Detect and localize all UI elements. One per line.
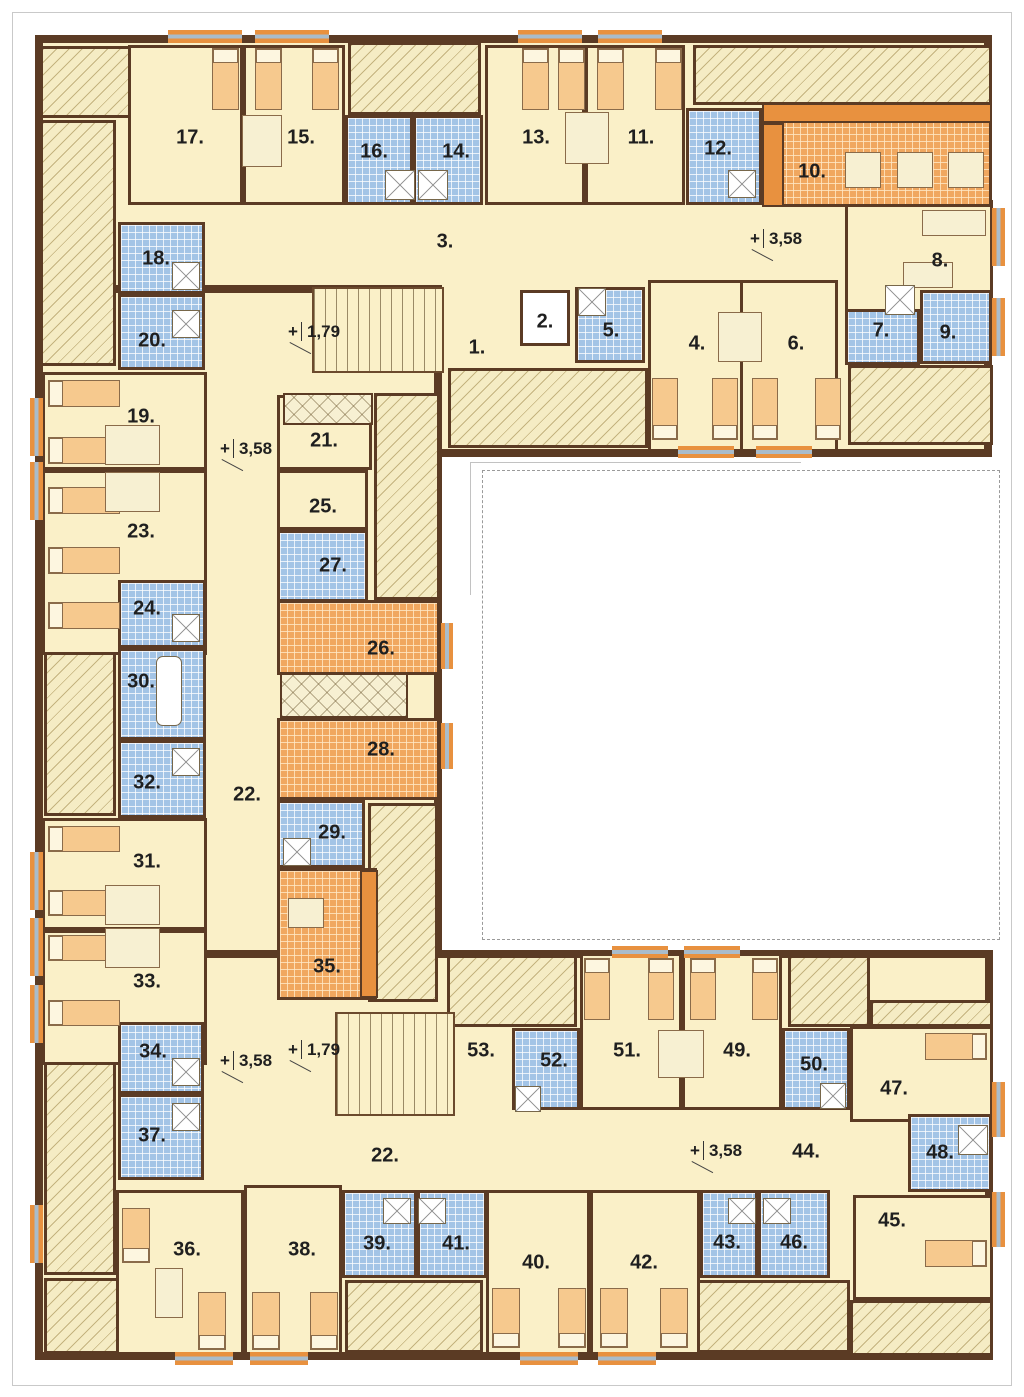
room-label-18: 18. — [142, 248, 170, 271]
bed-pillow — [598, 49, 623, 63]
bed-pillow — [753, 959, 777, 973]
bed-pillow — [213, 49, 238, 63]
table-1 — [565, 112, 609, 164]
bed-2 — [312, 48, 339, 110]
room-label-50: 50. — [800, 1054, 828, 1077]
room-label-29: 29. — [318, 822, 346, 845]
terrace-hatch-0 — [40, 46, 133, 118]
shower-13 — [820, 1083, 846, 1109]
window-19 — [756, 446, 812, 458]
bed-pillow — [713, 425, 737, 439]
window-9 — [30, 462, 43, 520]
bed-pillow — [972, 1034, 986, 1059]
bed-4 — [558, 48, 585, 110]
room-label-36: 36. — [173, 1239, 201, 1262]
terrace-hatch-14 — [788, 955, 870, 1027]
room-label-45: 45. — [878, 1210, 906, 1233]
room-28-floor — [277, 718, 440, 800]
courtyard-roof-step-line — [470, 462, 801, 595]
terrace-hatch-13 — [447, 955, 577, 1027]
room-label-6: 6. — [788, 333, 805, 356]
room-label-27: 27. — [319, 555, 347, 578]
room-label-52: 52. — [540, 1050, 568, 1073]
bed-15 — [48, 602, 120, 629]
window-1 — [255, 30, 329, 43]
bed-25 — [558, 1288, 586, 1348]
table-0 — [242, 115, 282, 167]
level-value: 1,79 — [301, 1040, 340, 1059]
bed-pillow — [123, 1248, 149, 1262]
bed-0 — [212, 48, 239, 110]
level-annotation-0: +3,58 — [750, 229, 802, 249]
shower-2 — [578, 288, 606, 316]
bed-pillow — [256, 49, 281, 63]
shower-16 — [418, 1198, 446, 1224]
window-8 — [30, 398, 43, 456]
bed-16 — [48, 826, 120, 852]
table-2 — [718, 312, 762, 362]
room-label-15: 15. — [287, 127, 315, 150]
bed-pillow — [523, 49, 548, 63]
bed-pillow — [661, 1333, 687, 1347]
window-13 — [30, 1205, 43, 1263]
shower-14 — [958, 1125, 988, 1155]
level-plus-sign: + — [690, 1141, 700, 1160]
room-label-35: 35. — [313, 956, 341, 979]
bed-pillow — [753, 425, 777, 439]
room-label-14: 14. — [442, 141, 470, 164]
room-label-1: 1. — [469, 337, 486, 360]
bed-pillow — [585, 959, 609, 973]
bed-29 — [648, 958, 674, 1020]
window-3 — [598, 30, 662, 43]
window-12 — [30, 985, 43, 1043]
shower-8 — [172, 748, 200, 776]
shower-6 — [172, 310, 200, 338]
table-3 — [105, 425, 160, 465]
terrace-hatch-12 — [695, 1280, 850, 1353]
room-label-42: 42. — [630, 1252, 658, 1275]
shower-4 — [728, 170, 756, 198]
room-label-41: 41. — [442, 1233, 470, 1256]
level-annotation-2: +3,58 — [220, 439, 272, 459]
bed-pillow — [49, 603, 63, 628]
bed-11 — [48, 380, 120, 407]
wardrobe-1 — [283, 393, 373, 425]
level-value: 3,58 — [233, 1051, 272, 1070]
bed-5 — [597, 48, 624, 110]
bed-pillow — [649, 959, 673, 973]
bed-pillow — [311, 1335, 337, 1349]
bed-pillow — [49, 488, 63, 513]
room-label-3: 3. — [437, 231, 454, 254]
level-annotation-5: +3,58 — [690, 1141, 742, 1161]
room-label-23: 23. — [127, 521, 155, 544]
table-13 — [922, 210, 986, 236]
terrace-hatch-11 — [345, 1280, 483, 1353]
window-4 — [175, 1352, 233, 1365]
level-plus-sign: + — [220, 1051, 230, 1070]
room-label-25: 25. — [309, 496, 337, 519]
window-14 — [992, 208, 1005, 266]
bed-pillow — [493, 1333, 519, 1347]
shower-11 — [283, 838, 311, 866]
bed-19 — [48, 1000, 120, 1026]
bed-8 — [712, 378, 738, 440]
bed-27 — [660, 1288, 688, 1348]
window-0 — [168, 30, 242, 43]
terrace-hatch-6 — [374, 393, 440, 600]
bed-pillow — [49, 827, 63, 851]
bed-pillow — [49, 438, 63, 463]
shower-12 — [515, 1086, 541, 1112]
bed-pillow — [49, 548, 63, 573]
terrace-hatch-15 — [870, 1000, 993, 1027]
room-label-40: 40. — [522, 1252, 550, 1275]
shower-3 — [885, 285, 915, 315]
shower-7 — [172, 614, 200, 642]
bed-pillow — [313, 49, 338, 63]
room-label-9: 9. — [940, 322, 957, 345]
level-annotation-3: +3,58 — [220, 1051, 272, 1071]
table-5 — [105, 885, 160, 925]
room-26-floor — [277, 600, 440, 675]
shower-1 — [418, 170, 448, 200]
bed-pillow — [49, 891, 63, 915]
room-label-21: 21. — [310, 430, 338, 453]
level-annotation-4: +1,79 — [288, 1040, 340, 1060]
bed-30 — [690, 958, 716, 1020]
room-label-11: 11. — [628, 127, 655, 150]
table-7 — [658, 1030, 704, 1078]
window-16 — [992, 1082, 1005, 1137]
bed-32 — [925, 1033, 987, 1060]
bed-21 — [198, 1292, 226, 1350]
terrace-hatch-5 — [848, 365, 993, 445]
room-label-37: 37. — [138, 1125, 166, 1148]
terrace-hatch-16 — [850, 1300, 993, 1356]
window-22 — [441, 623, 453, 669]
level-annotation-1: +1,79 — [288, 322, 340, 342]
wardrobe-0 — [280, 673, 408, 718]
kitchen-counter-2 — [360, 870, 378, 998]
room-label-10: 10. — [798, 161, 826, 184]
window-7 — [598, 1352, 656, 1365]
room-label-16: 16. — [360, 141, 388, 164]
table-4 — [105, 472, 160, 512]
bed-pillow — [49, 381, 63, 406]
room-label-7: 7. — [873, 320, 890, 343]
level-value: 3,58 — [763, 229, 802, 248]
shower-17 — [728, 1198, 756, 1224]
room-label-43: 43. — [713, 1232, 741, 1255]
bed-pillow — [199, 1335, 225, 1349]
bed-pillow — [253, 1335, 279, 1349]
room-label-22: 22. — [233, 784, 261, 807]
window-5 — [250, 1352, 308, 1365]
window-11 — [30, 918, 43, 976]
window-15 — [992, 298, 1005, 356]
bathtub-0 — [156, 656, 182, 726]
room-label-47: 47. — [880, 1078, 908, 1101]
level-plus-sign: + — [220, 439, 230, 458]
window-18 — [678, 446, 734, 458]
terrace-hatch-3 — [693, 45, 992, 105]
bed-6 — [655, 48, 682, 110]
room-label-38: 38. — [288, 1239, 316, 1262]
room-label-12: 12. — [704, 138, 732, 161]
window-10 — [30, 852, 43, 910]
terrace-hatch-8 — [368, 803, 438, 1002]
terrace-hatch-2 — [348, 42, 481, 115]
room-label-44: 44. — [792, 1141, 820, 1164]
bed-pillow — [653, 425, 677, 439]
bed-20 — [122, 1208, 150, 1263]
room-label-4: 4. — [689, 333, 706, 356]
room-label-19: 19. — [127, 406, 155, 429]
floor-plan-canvas: 1.2.3.4.5.6.7.8.9.10.11.12.13.14.15.16.1… — [0, 0, 1024, 1397]
bed-1 — [255, 48, 282, 110]
table-8 — [845, 152, 881, 188]
room-label-30: 30. — [127, 671, 155, 694]
window-2 — [518, 30, 582, 43]
table-6 — [105, 928, 160, 968]
window-21 — [684, 946, 740, 958]
room-label-34: 34. — [139, 1041, 167, 1064]
shower-18 — [763, 1198, 791, 1224]
room-label-20: 20. — [138, 330, 166, 353]
terrace-hatch-1 — [40, 120, 116, 366]
bed-pillow — [49, 936, 63, 960]
bed-pillow — [559, 1333, 585, 1347]
room-label-17: 17. — [176, 127, 204, 150]
table-10 — [948, 152, 984, 188]
room-label-46: 46. — [780, 1232, 808, 1255]
room-label-53: 53. — [467, 1040, 495, 1063]
level-plus-sign: + — [750, 229, 760, 248]
bed-26 — [600, 1288, 628, 1348]
level-value: 1,79 — [301, 322, 340, 341]
bed-7 — [652, 378, 678, 440]
room-label-39: 39. — [363, 1233, 391, 1256]
bed-pillow — [559, 49, 584, 63]
bed-pillow — [691, 959, 715, 973]
bed-pillow — [972, 1241, 986, 1266]
room-label-33: 33. — [133, 971, 161, 994]
level-value: 3,58 — [233, 439, 272, 458]
bed-3 — [522, 48, 549, 110]
shower-0 — [385, 170, 415, 200]
room-label-32: 32. — [133, 772, 161, 795]
shower-5 — [172, 262, 200, 290]
bed-9 — [752, 378, 778, 440]
table-12 — [155, 1268, 183, 1318]
window-6 — [520, 1352, 578, 1365]
bed-pillow — [816, 425, 840, 439]
room-label-31: 31. — [133, 851, 161, 874]
room-label-24: 24. — [133, 598, 161, 621]
level-value: 3,58 — [703, 1141, 742, 1160]
bed-pillow — [601, 1333, 627, 1347]
bed-28 — [584, 958, 610, 1020]
room-label-28: 28. — [367, 739, 395, 762]
window-17 — [992, 1192, 1005, 1247]
table-9 — [897, 152, 933, 188]
level-plus-sign: + — [288, 322, 298, 341]
table-11 — [288, 898, 324, 928]
shower-15 — [383, 1198, 411, 1224]
kitchen-counter-1 — [762, 123, 784, 207]
room-label-49: 49. — [723, 1040, 751, 1063]
bed-24 — [492, 1288, 520, 1348]
bed-23 — [310, 1292, 338, 1350]
room-label-51: 51. — [613, 1040, 641, 1063]
shower-9 — [172, 1058, 200, 1086]
room-label-2: 2. — [537, 311, 554, 334]
window-20 — [612, 946, 668, 958]
room-label-5: 5. — [603, 320, 620, 343]
shower-10 — [172, 1103, 200, 1131]
bed-pillow — [49, 1001, 63, 1025]
room-label-8: 8. — [932, 250, 949, 273]
bed-14 — [48, 547, 120, 574]
bed-22 — [252, 1292, 280, 1350]
room-label-22: 22. — [371, 1145, 399, 1168]
bed-10 — [815, 378, 841, 440]
kitchen-counter-0 — [762, 103, 992, 123]
room-3-floor — [205, 205, 845, 285]
level-plus-sign: + — [288, 1040, 298, 1059]
bed-33 — [925, 1240, 987, 1267]
window-23 — [441, 723, 453, 769]
room-label-48: 48. — [926, 1142, 954, 1165]
room-label-13: 13. — [522, 127, 550, 150]
staircase-1 — [335, 1012, 455, 1116]
room-label-26: 26. — [367, 638, 395, 661]
bed-pillow — [656, 49, 681, 63]
bed-31 — [752, 958, 778, 1020]
